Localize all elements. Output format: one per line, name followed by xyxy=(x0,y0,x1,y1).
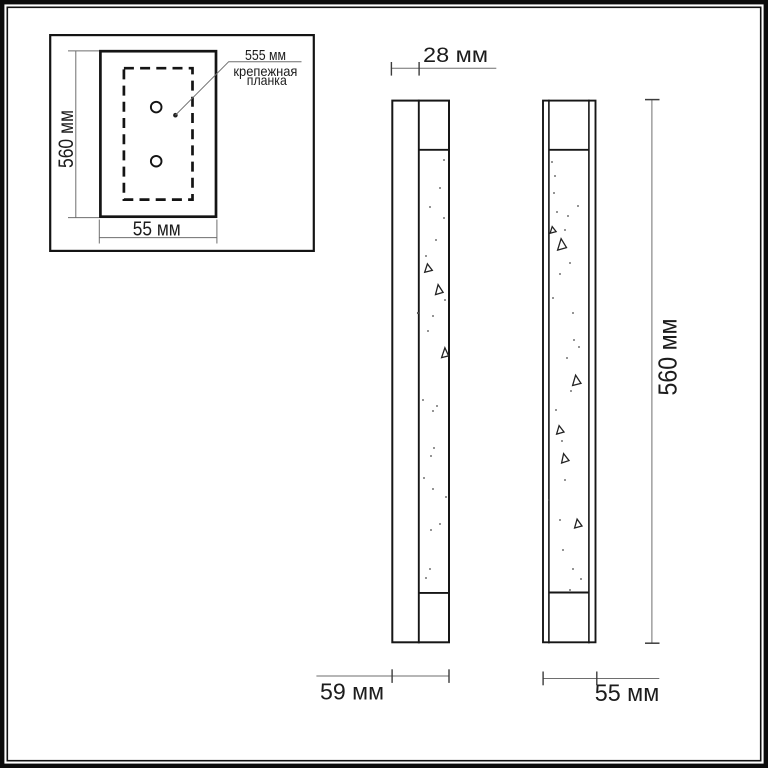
svg-text:28 мм: 28 мм xyxy=(423,44,488,67)
svg-text:55 мм: 55 мм xyxy=(133,219,181,241)
svg-text:555 мм: 555 мм xyxy=(245,47,286,64)
svg-text:560 мм: 560 мм xyxy=(652,319,682,396)
svg-text:планка: планка xyxy=(247,72,287,88)
svg-text:560 мм: 560 мм xyxy=(54,110,78,168)
svg-text:55 мм: 55 мм xyxy=(595,680,660,707)
svg-text:59 мм: 59 мм xyxy=(320,678,384,704)
